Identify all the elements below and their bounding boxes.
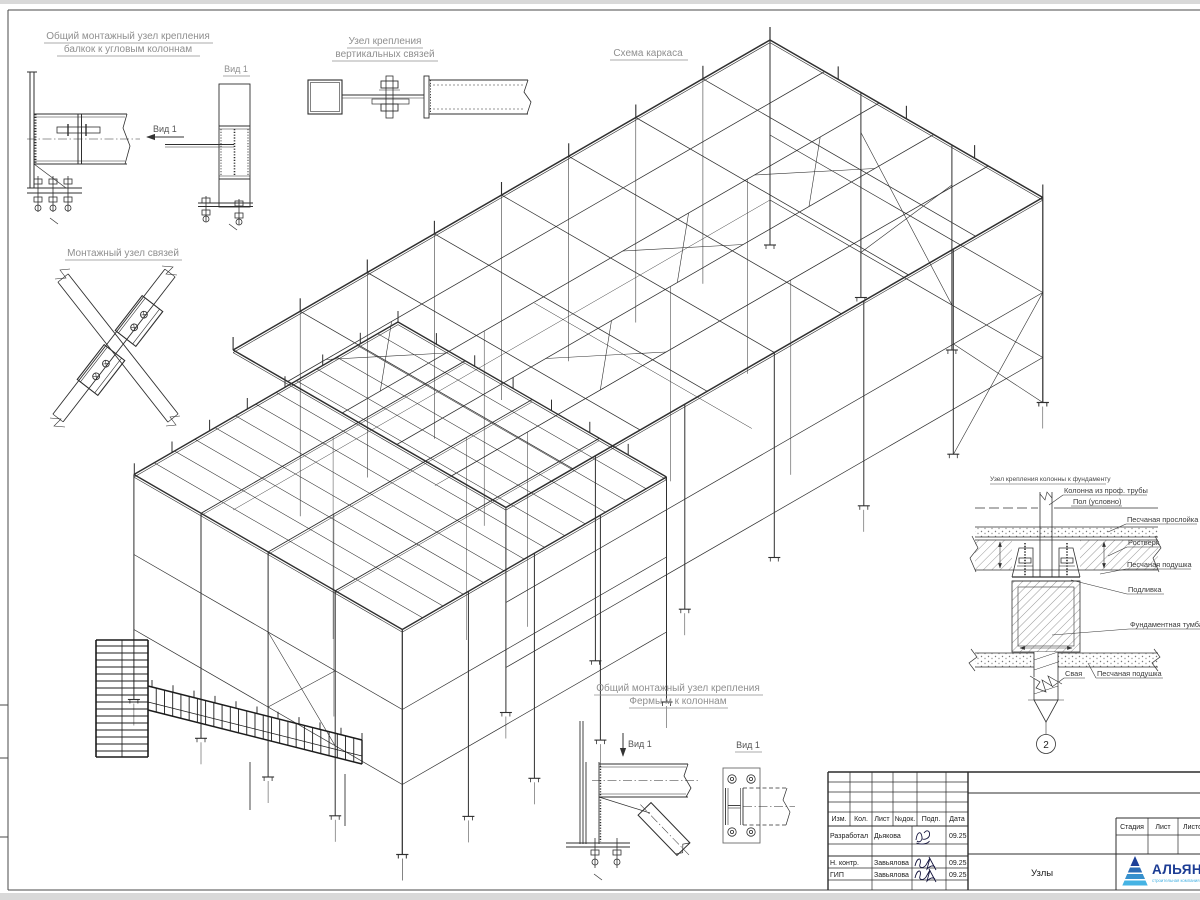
label-pedestal: Фундаментная тумба <box>1130 620 1200 629</box>
stair-gangway <box>96 640 362 826</box>
detail-braces-drawing <box>50 266 180 427</box>
tb-row-name: Завьялова <box>874 860 909 867</box>
label-floor: Пол (условно) <box>1073 497 1121 506</box>
drawing-sheet: Схема каркаса Общий монтажный узел крепл… <box>0 0 1200 900</box>
tb-sheet-name: Узлы <box>1031 868 1053 879</box>
label-sand-cushion: Песчаная подушка <box>1127 560 1193 569</box>
detail-vert-braces-title2: вертикальных связей <box>335 49 434 60</box>
detail-truss-title1: Общий монтажный узел крепления <box>596 682 760 694</box>
tb-listov: Листов <box>1183 824 1200 831</box>
detail-vert-braces: Узел крепления вертикальных связей <box>308 36 531 118</box>
label-column: Колонна из проф. трубы <box>1064 486 1148 495</box>
title-block: Изм. Кол. Лист №док. Подп. Дата Разработ… <box>828 772 1200 890</box>
drawing-canvas: Схема каркаса Общий монтажный узел крепл… <box>0 0 1200 900</box>
tb-row-name: Дьякова <box>874 833 901 840</box>
label-sand-layer: Песчаная прослойка <box>1127 515 1199 524</box>
label-grout: Подливка <box>1128 585 1162 594</box>
logo-text: АЛЬЯНС <box>1152 862 1200 877</box>
logo-pyramid-icon <box>1122 856 1147 886</box>
detail-braces-title: Монтажный узел связей <box>67 248 179 259</box>
detail-braces: Монтажный узел связей <box>50 248 182 427</box>
tb-header-podp: Подп. <box>922 816 941 823</box>
tb-stage: Стадия <box>1120 824 1144 831</box>
tb-row-role: ГИП <box>830 872 844 879</box>
tb-row-date: 09.25 <box>949 872 967 879</box>
detail-corner-beam-view-arrow-label: Вид 1 <box>153 124 177 134</box>
detail-vert-braces-title1: Узел крепления <box>349 36 422 47</box>
page-bottom-strip <box>0 893 1200 900</box>
detail-corner-beam: Общий монтажный узел крепления балкок к … <box>27 30 253 230</box>
company-logo: АЛЬЯНС строительная компания <box>1122 856 1200 886</box>
detail-corner-beam-left-view <box>27 72 140 224</box>
detail-truss-right-view: Вид 1 <box>723 740 795 843</box>
detail-corner-beam-title2: балкок к угловым колоннам <box>64 43 192 55</box>
tb-header-ndok: №док. <box>895 816 916 823</box>
tb-header-izm: Изм. <box>832 816 847 823</box>
detail-corner-beam-view-title: Вид 1 <box>224 64 248 74</box>
logo-subtitle: строительная компания <box>1152 878 1200 883</box>
sheet-frame <box>0 10 1200 890</box>
detail-corner-beam-title1: Общий монтажный узел крепления <box>46 30 210 42</box>
detail-corner-beam-right-view: Вид 1 <box>165 64 253 230</box>
tb-row-date: 09.25 <box>949 833 967 840</box>
tb-row-name: Завьялова <box>874 872 909 879</box>
label-grillage: Ростверк <box>1128 538 1160 547</box>
tb-list: Лист <box>1155 824 1171 831</box>
detail-truss-view-arrow-label: Вид 1 <box>628 739 652 749</box>
tb-row-role: Разработал <box>830 832 868 840</box>
tb-header-data: Дата <box>949 816 965 823</box>
scheme-title: Схема каркаса <box>613 48 683 59</box>
foundation-marker: 2 <box>1043 740 1049 751</box>
detail-truss-view-title: Вид 1 <box>736 740 760 750</box>
signature-dyakova <box>916 831 930 844</box>
detail-truss-title2: Фермы м к колоннам <box>629 696 726 707</box>
detail-foundation-title: Узел крепления колонны к фундаменту <box>990 476 1111 483</box>
tb-row-date: 09.25 <box>949 860 967 867</box>
page-top-strip <box>0 0 1200 4</box>
frame-scheme-wireframe <box>128 27 1049 881</box>
tb-header-kol: Кол. <box>854 816 868 823</box>
detail-foundation: Узел крепления колонны к фундаменту <box>969 476 1200 754</box>
label-sand-cushion2: Песчаная подушка <box>1097 669 1163 678</box>
detail-vert-braces-drawing <box>308 76 531 118</box>
tb-header-list: Лист <box>874 816 890 823</box>
label-pile: Свая <box>1065 669 1082 678</box>
tb-row-role: Н. контр. <box>830 860 859 867</box>
